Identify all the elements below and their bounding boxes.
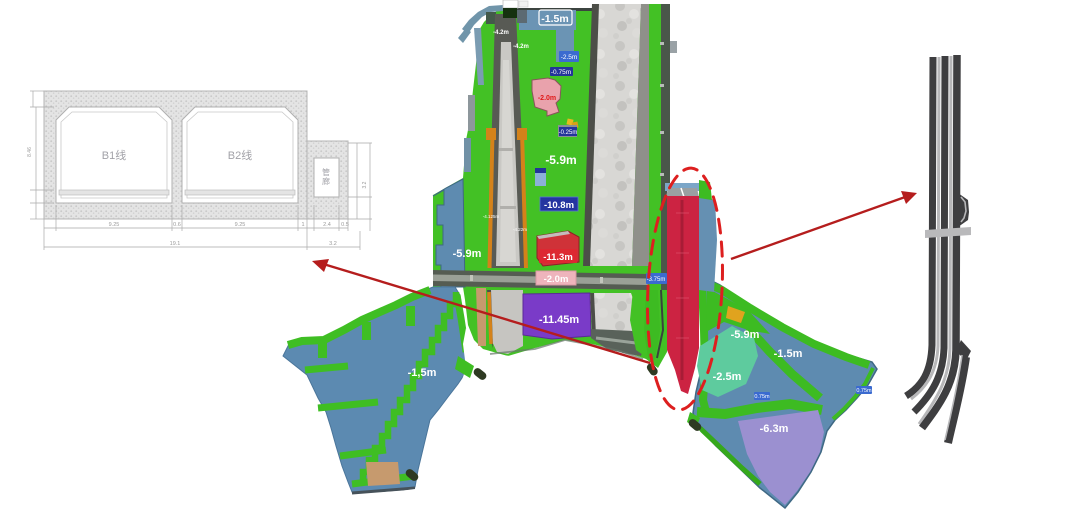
svg-text:-4.2m: -4.2m	[493, 30, 509, 36]
svg-text:B2线: B2线	[228, 148, 252, 162]
svg-text:9.25: 9.25	[109, 222, 120, 228]
svg-text:-6.3m: -6.3m	[760, 423, 789, 435]
svg-text:-4.125m: -4.125m	[483, 214, 500, 219]
svg-text:-11.3m: -11.3m	[543, 252, 573, 263]
svg-text:-2.0m: -2.0m	[544, 274, 569, 285]
svg-text:-2.5m: -2.5m	[713, 371, 742, 383]
svg-text:0.75m: 0.75m	[754, 394, 770, 400]
svg-text:-0.75m: -0.75m	[551, 69, 571, 76]
svg-text:-10.8m: -10.8m	[544, 200, 574, 211]
svg-text:-4.2m: -4.2m	[513, 44, 529, 50]
svg-text:-1.5m: -1.5m	[774, 348, 803, 360]
svg-text:1: 1	[301, 222, 304, 228]
svg-text:-1.5m: -1.5m	[541, 13, 568, 25]
svg-text:0.75m: 0.75m	[856, 388, 872, 394]
svg-text:3.2: 3.2	[362, 181, 368, 188]
svg-text:-5.9m: -5.9m	[731, 329, 760, 341]
svg-text:-0.25m: -0.25m	[559, 130, 578, 136]
svg-text:-2.5m: -2.5m	[561, 54, 578, 61]
svg-text:-4.22m: -4.22m	[513, 227, 527, 232]
svg-text:管: 管	[322, 167, 330, 177]
svg-text:-5.9m: -5.9m	[453, 248, 482, 260]
svg-text:-11.45m: -11.45m	[539, 314, 580, 326]
svg-text:9.25: 9.25	[235, 222, 246, 228]
svg-text:3.2: 3.2	[329, 241, 337, 247]
svg-text:0.5: 0.5	[341, 222, 349, 228]
svg-text:0.6: 0.6	[173, 222, 181, 228]
svg-text:廊: 廊	[322, 176, 330, 186]
svg-text:2.4: 2.4	[323, 222, 331, 228]
svg-text:19.1: 19.1	[170, 241, 181, 247]
svg-text:8.46: 8.46	[27, 147, 33, 157]
svg-text:-2.0m: -2.0m	[538, 95, 556, 102]
svg-text:-5.9m: -5.9m	[545, 153, 576, 167]
svg-text:-1,5m: -1,5m	[408, 367, 437, 379]
svg-text:B1线: B1线	[102, 148, 126, 162]
